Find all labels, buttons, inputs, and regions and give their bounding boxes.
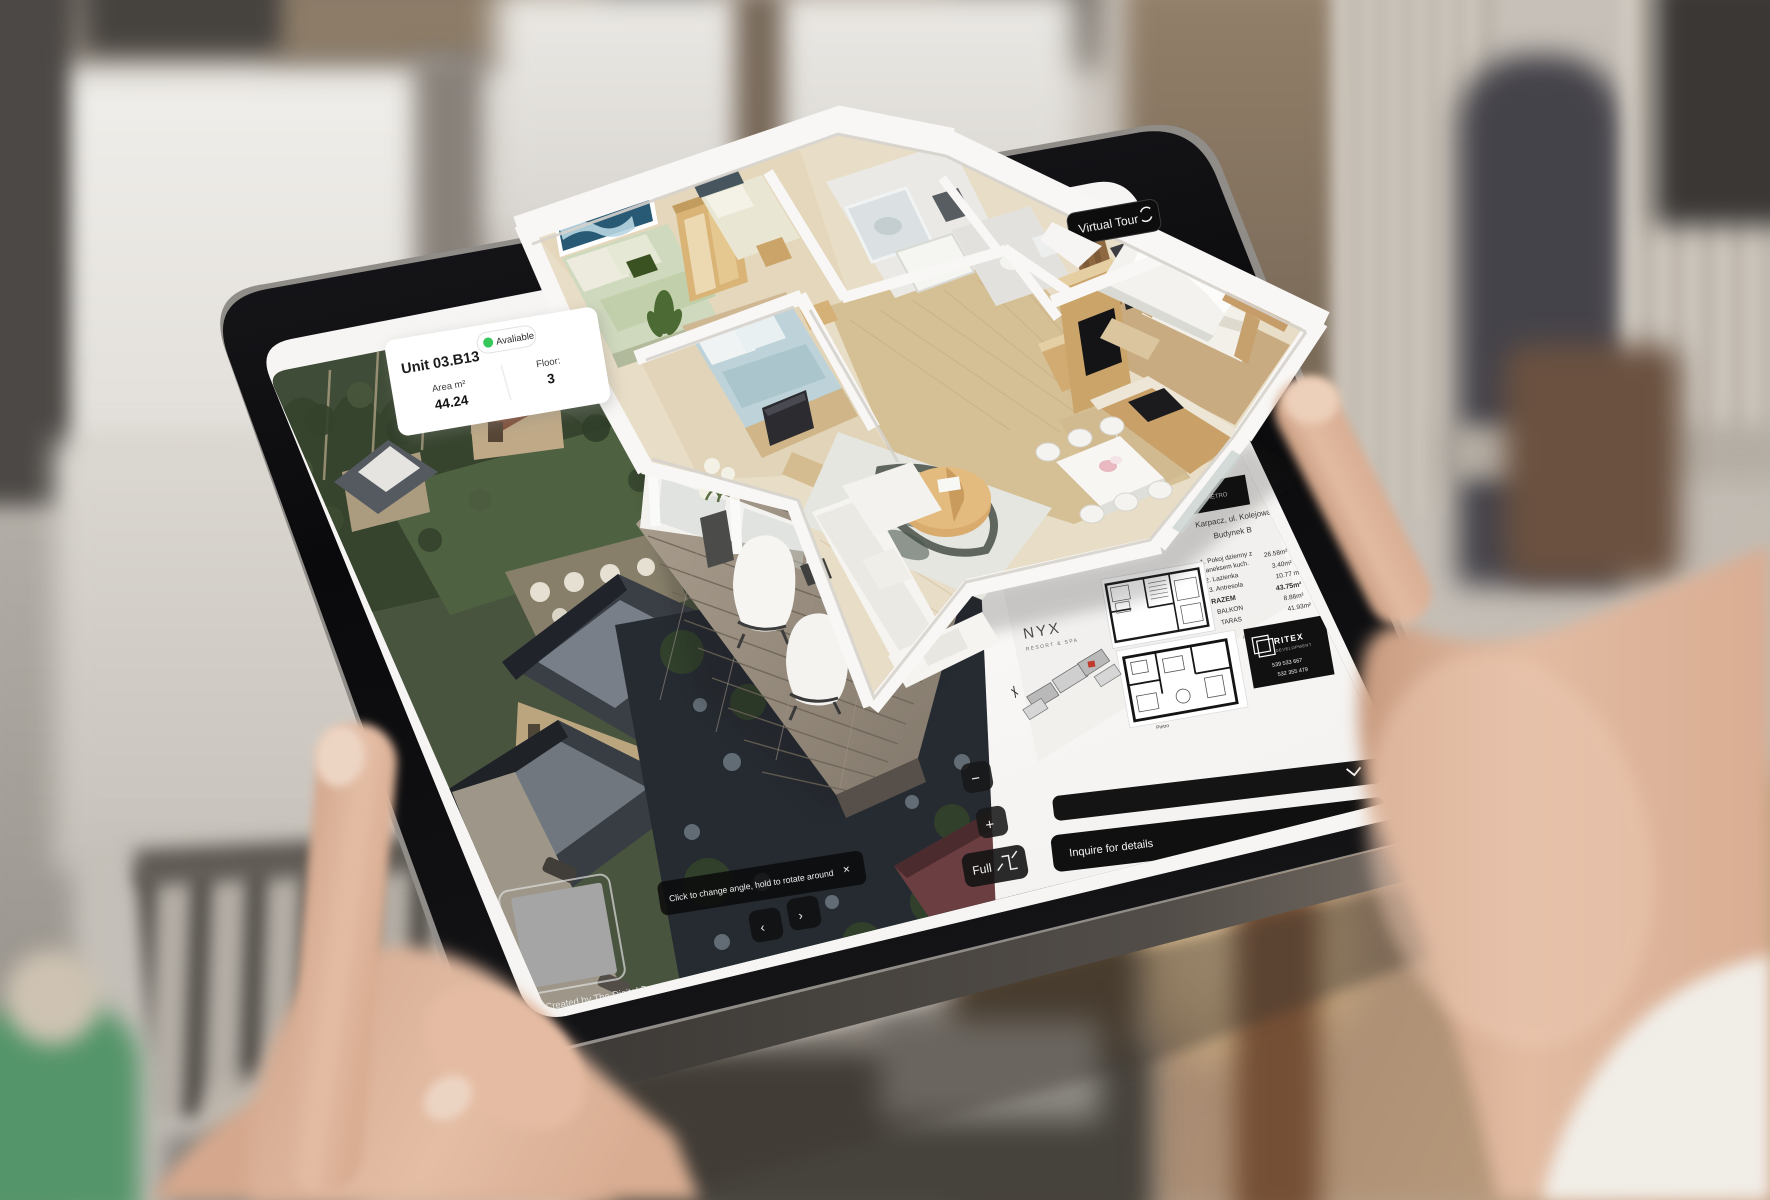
svg-text:✕: ✕ — [842, 864, 851, 875]
